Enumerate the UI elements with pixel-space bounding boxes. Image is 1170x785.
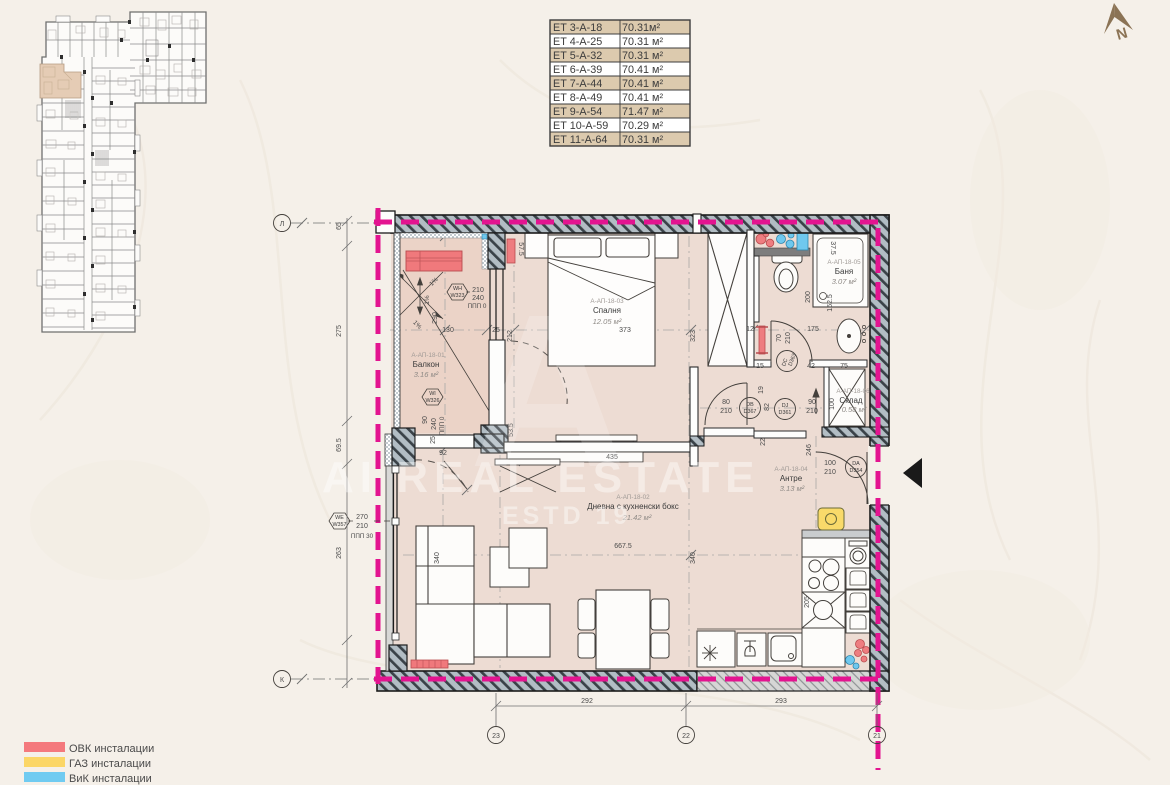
svg-text:210: 210 bbox=[356, 523, 368, 530]
svg-text:WE: WE bbox=[335, 515, 344, 521]
svg-text:100: 100 bbox=[829, 398, 836, 410]
svg-text:Склад: Склад bbox=[839, 396, 862, 405]
svg-text:21: 21 bbox=[873, 733, 881, 740]
svg-text:3.07 м²: 3.07 м² bbox=[832, 277, 857, 286]
svg-text:37.5: 37.5 bbox=[829, 241, 836, 255]
svg-text:25: 25 bbox=[430, 436, 437, 444]
svg-text:323: 323 bbox=[690, 330, 697, 342]
svg-text:22: 22 bbox=[760, 438, 767, 446]
svg-text:75: 75 bbox=[840, 363, 848, 370]
svg-text:ВиК инсталации: ВиК инсталации bbox=[69, 773, 152, 785]
svg-text:AI REAL ESTATE: AI REAL ESTATE bbox=[322, 453, 760, 502]
svg-text:15: 15 bbox=[756, 363, 764, 370]
svg-text:210: 210 bbox=[824, 469, 836, 476]
svg-text:57.5: 57.5 bbox=[517, 242, 524, 256]
svg-text:ЕТ 5-А-32: ЕТ 5-А-32 bbox=[553, 50, 602, 62]
svg-text:42: 42 bbox=[807, 363, 815, 370]
svg-text:130: 130 bbox=[442, 327, 454, 334]
svg-text:340: 340 bbox=[434, 552, 441, 564]
svg-text:ЕТ 4-А-25: ЕТ 4-А-25 bbox=[553, 36, 602, 48]
svg-text:270: 270 bbox=[356, 514, 368, 521]
svg-text:70.31 м²: 70.31 м² bbox=[622, 134, 663, 146]
svg-text:WI: WI bbox=[429, 391, 436, 397]
svg-text:1%: 1% bbox=[424, 295, 431, 305]
svg-text:290: 290 bbox=[432, 312, 439, 324]
svg-text:Л: Л bbox=[280, 221, 285, 228]
svg-text:340: 340 bbox=[690, 552, 697, 564]
svg-text:12: 12 bbox=[746, 326, 754, 333]
svg-text:175: 175 bbox=[807, 326, 819, 333]
svg-text:293: 293 bbox=[775, 698, 787, 705]
svg-text:71.47 м²: 71.47 м² bbox=[622, 106, 663, 118]
svg-text:70.41 м²: 70.41 м² bbox=[622, 64, 663, 76]
svg-text:70.31 м²: 70.31 м² bbox=[622, 36, 663, 48]
svg-text:DB: DB bbox=[746, 402, 754, 408]
svg-text:70.41 м²: 70.41 м² bbox=[622, 92, 663, 104]
svg-text:ESTD 19: ESTD 19 bbox=[502, 502, 631, 530]
svg-text:WH: WH bbox=[453, 286, 462, 292]
svg-text:ЕТ 8-А-49: ЕТ 8-А-49 bbox=[553, 92, 602, 104]
svg-text:W326: W326 bbox=[425, 398, 439, 404]
svg-text:А-АП-18-01: А-АП-18-01 bbox=[411, 352, 445, 359]
svg-text:205: 205 bbox=[804, 596, 811, 608]
svg-text:ЕТ 7-А-44: ЕТ 7-А-44 bbox=[553, 78, 602, 90]
svg-text:D367: D367 bbox=[744, 409, 757, 415]
svg-text:19: 19 bbox=[758, 386, 765, 394]
svg-text:70: 70 bbox=[776, 334, 783, 342]
svg-text:ЕТ 6-А-39: ЕТ 6-А-39 bbox=[553, 64, 602, 76]
svg-text:D354: D354 bbox=[850, 468, 863, 474]
svg-text:70.41 м²: 70.41 м² bbox=[622, 78, 663, 90]
svg-text:W357: W357 bbox=[332, 522, 346, 528]
svg-text:ППП 30: ППП 30 bbox=[351, 533, 374, 540]
svg-text:100: 100 bbox=[824, 460, 836, 467]
svg-text:23: 23 bbox=[492, 733, 500, 740]
svg-text:240: 240 bbox=[431, 418, 438, 430]
svg-text:ППП 0: ППП 0 bbox=[439, 416, 446, 435]
svg-text:ЕТ 3-А-18: ЕТ 3-А-18 bbox=[553, 22, 602, 34]
svg-text:D361: D361 bbox=[779, 410, 792, 416]
svg-text:90: 90 bbox=[808, 399, 816, 406]
svg-text:210: 210 bbox=[806, 408, 818, 415]
svg-text:Балкон: Балкон bbox=[413, 360, 440, 369]
svg-text:82: 82 bbox=[764, 403, 771, 411]
svg-text:3.16 м²: 3.16 м² bbox=[414, 370, 439, 379]
svg-text:DA: DA bbox=[852, 461, 860, 467]
svg-text:80: 80 bbox=[722, 399, 730, 406]
svg-text:292: 292 bbox=[581, 698, 593, 705]
svg-text:210: 210 bbox=[785, 332, 792, 344]
svg-text:W323: W323 bbox=[450, 293, 464, 299]
svg-text:ЕТ 11-А-64: ЕТ 11-А-64 bbox=[553, 134, 607, 146]
svg-text:DJ: DJ bbox=[782, 403, 789, 409]
svg-text:70.31м²: 70.31м² bbox=[622, 22, 660, 34]
svg-text:ОВК инсталации: ОВК инсталации bbox=[69, 743, 154, 755]
svg-text:А-АП-18-05: А-АП-18-05 bbox=[827, 259, 861, 266]
svg-text:70.29 м²: 70.29 м² bbox=[622, 120, 663, 132]
svg-text:А-АП-18-04: А-АП-18-04 bbox=[774, 466, 808, 473]
svg-text:275: 275 bbox=[336, 325, 343, 337]
svg-text:69.5: 69.5 bbox=[336, 438, 343, 452]
svg-text:210: 210 bbox=[720, 408, 732, 415]
svg-text:90: 90 bbox=[422, 416, 429, 424]
svg-text:Баня: Баня bbox=[835, 267, 853, 276]
svg-text:22: 22 bbox=[682, 733, 690, 740]
svg-text:А-АП-18-06: А-АП-18-06 bbox=[836, 388, 870, 395]
svg-text:246: 246 bbox=[806, 444, 813, 456]
svg-text:Антре: Антре bbox=[780, 474, 803, 483]
svg-text:ГАЗ инсталации: ГАЗ инсталации bbox=[69, 758, 151, 770]
svg-text:667.5: 667.5 bbox=[614, 543, 632, 550]
svg-text:263: 263 bbox=[336, 547, 343, 559]
svg-text:3.13 м²: 3.13 м² bbox=[780, 484, 805, 493]
svg-text:0.58 м²: 0.58 м² bbox=[842, 405, 867, 414]
svg-text:70.31 м²: 70.31 м² bbox=[622, 50, 663, 62]
svg-text:162.5: 162.5 bbox=[827, 294, 834, 312]
svg-text:ЕТ 10-А-59: ЕТ 10-А-59 bbox=[553, 120, 608, 132]
svg-text:ЕТ 9-А-54: ЕТ 9-А-54 bbox=[553, 106, 602, 118]
svg-text:200: 200 bbox=[805, 291, 812, 303]
